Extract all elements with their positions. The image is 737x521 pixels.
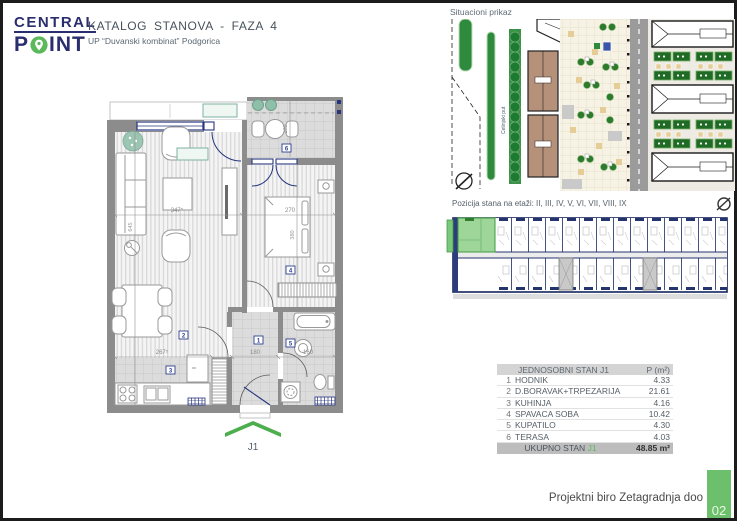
highlighted-unit-j1: [458, 218, 495, 252]
dim-terrace-height: 170: [283, 124, 289, 133]
central-point-logo: CENTRAL P INT: [14, 15, 96, 55]
wardrobe: [278, 283, 337, 297]
room-badge-kitchen: 3: [166, 366, 175, 375]
floor-grill: [315, 397, 335, 405]
dim-living-height: 645: [128, 222, 134, 231]
highlight-terrace: [447, 220, 453, 252]
street-name: Cetinjski put: [501, 106, 507, 134]
page-number: 02: [712, 504, 726, 518]
dining-chair: [112, 316, 126, 334]
terrace-chair: [252, 121, 264, 137]
north-compass-icon: [456, 173, 472, 189]
coffee-table: [163, 178, 192, 210]
dim-bath-width: 160: [303, 350, 314, 356]
unit-label: J1: [248, 442, 259, 453]
corridor: [453, 252, 727, 258]
blue-kiosk: [603, 42, 611, 51]
studio-credit: Projektni biro Zetagradnja doo: [400, 492, 703, 504]
entry-step: [240, 413, 270, 418]
toilet-tank: [328, 376, 334, 389]
east-district: [648, 19, 735, 191]
dim-kitchen-width: 267⁵: [156, 349, 169, 356]
north-arrow-icon: [714, 196, 732, 212]
page-number-badge: 02: [707, 470, 731, 518]
lower-apartments: [495, 258, 727, 290]
plant-icon: [266, 100, 277, 111]
building-west-wall: [453, 218, 458, 292]
table-row: 5 KUPATILO 4.30: [497, 420, 673, 431]
dim-living-width: 347⁵: [171, 207, 184, 214]
room-badge-hall: 1: [254, 336, 263, 345]
entry-door-opening: [240, 405, 270, 413]
site-plan-label: Situacioni prikaz: [450, 7, 512, 17]
dim-hall-width: 180: [250, 350, 261, 356]
table-row: 6 TERASA 4.03: [497, 431, 673, 442]
hall-floor: [232, 312, 278, 408]
logo-central-text: CENTRAL: [14, 15, 96, 33]
terrace-table: [266, 120, 285, 139]
apartment-floor-plan: 347⁵ 270 645 380 170 267⁵ 180 160 1 2 3 …: [62, 85, 352, 463]
room-badge-terrace: 6: [282, 144, 291, 153]
dining-chair: [112, 288, 126, 306]
table-header: JEDNOSOBNI STAN J1 P (m²): [497, 364, 673, 375]
room-badge-bedroom: 4: [286, 266, 295, 275]
fridge: [187, 355, 208, 382]
room-badge-bath: 5: [286, 339, 295, 348]
table-row: 3 KUHINJA 4.16: [497, 398, 673, 409]
tv: [225, 185, 228, 219]
total-label: UKUPNO STAN: [524, 443, 585, 453]
entry-arrow-icon: [225, 421, 281, 437]
armchair: [162, 230, 190, 262]
hall-closet: [212, 358, 227, 405]
building-floor-plan: [443, 216, 737, 312]
pillow: [302, 229, 308, 253]
tree-row: [509, 29, 521, 184]
area-column-header: P (m²): [630, 365, 673, 375]
apartment-area-table: JEDNOSOBNI STAN J1 P (m²) 1 HODNIK 4.33 …: [497, 364, 673, 454]
table-row: 1 HODNIK 4.33: [497, 375, 673, 386]
page-subtitle: UP “Duvanski kombinat” Podgorica: [88, 36, 278, 46]
floor-grill: [188, 398, 205, 405]
nightstand: [318, 263, 334, 276]
total-unit-label: J1: [588, 443, 597, 453]
floor-position-label: Pozicija stana na etaži: II, III, IV, V,…: [452, 199, 627, 208]
location-pin-icon: [30, 36, 48, 54]
total-area: 48.85 m²: [624, 443, 673, 453]
toilet: [314, 375, 326, 390]
page-title: KATALOG STANOVA - FAZA 4: [88, 19, 278, 33]
plaza: [560, 19, 630, 191]
plant-icon: [123, 131, 143, 151]
room-badge-living: 2: [179, 331, 188, 340]
tv-cabinet: [222, 168, 237, 235]
pillow: [302, 201, 308, 225]
dining-chair: [158, 288, 172, 306]
header-titles: KATALOG STANOVA - FAZA 4 UP “Duvanski ko…: [88, 19, 278, 46]
road-center: [627, 19, 648, 191]
catalog-page: CENTRAL P INT KATALOG STANOVA - FAZA 4 U…: [0, 0, 737, 521]
logo-point-text: P INT: [14, 34, 96, 55]
dim-bedroom-height: 380: [290, 230, 296, 239]
table-row: 2 D.BORAVAK+TRPEZARIJA 21.61: [497, 386, 673, 397]
dining-chair: [158, 316, 172, 334]
table-title: JEDNOSOBNI STAN J1: [497, 365, 630, 375]
nightstand: [318, 180, 334, 193]
console-table: [177, 148, 208, 160]
plant-icon: [253, 100, 264, 111]
building-shadow: [453, 294, 727, 299]
table-total-row: UKUPNO STAN J1 48.85 m²: [497, 443, 673, 454]
green-tile: [594, 43, 600, 49]
upper-apartments: [495, 218, 727, 252]
upper-balcony-outline: [110, 102, 247, 120]
dim-bedroom-width: 270: [285, 208, 296, 214]
bedroom-door-opening: [247, 307, 273, 312]
dining-table: [122, 285, 162, 337]
table-row: 4 SPAVACA SOBA 10.42: [497, 409, 673, 420]
site-plan-map: Cetinjski put: [450, 19, 735, 191]
